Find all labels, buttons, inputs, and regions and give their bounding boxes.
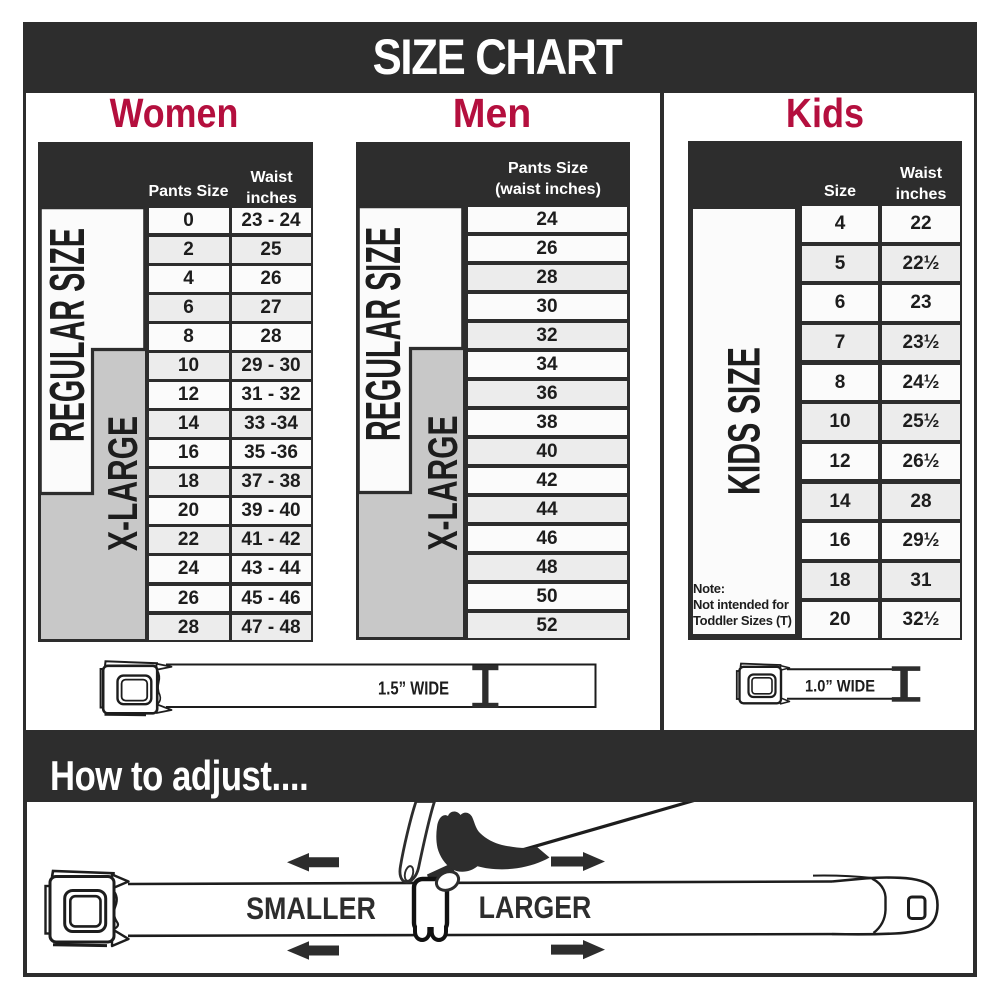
svg-text:X-LARGE: X-LARGE [99, 416, 146, 551]
svg-text:X-LARGE: X-LARGE [419, 416, 466, 551]
svg-text:KIDS SIZE: KIDS SIZE [719, 347, 770, 495]
svg-text:1.5” WIDE: 1.5” WIDE [378, 678, 449, 699]
svg-text:1.0” WIDE: 1.0” WIDE [805, 677, 875, 696]
